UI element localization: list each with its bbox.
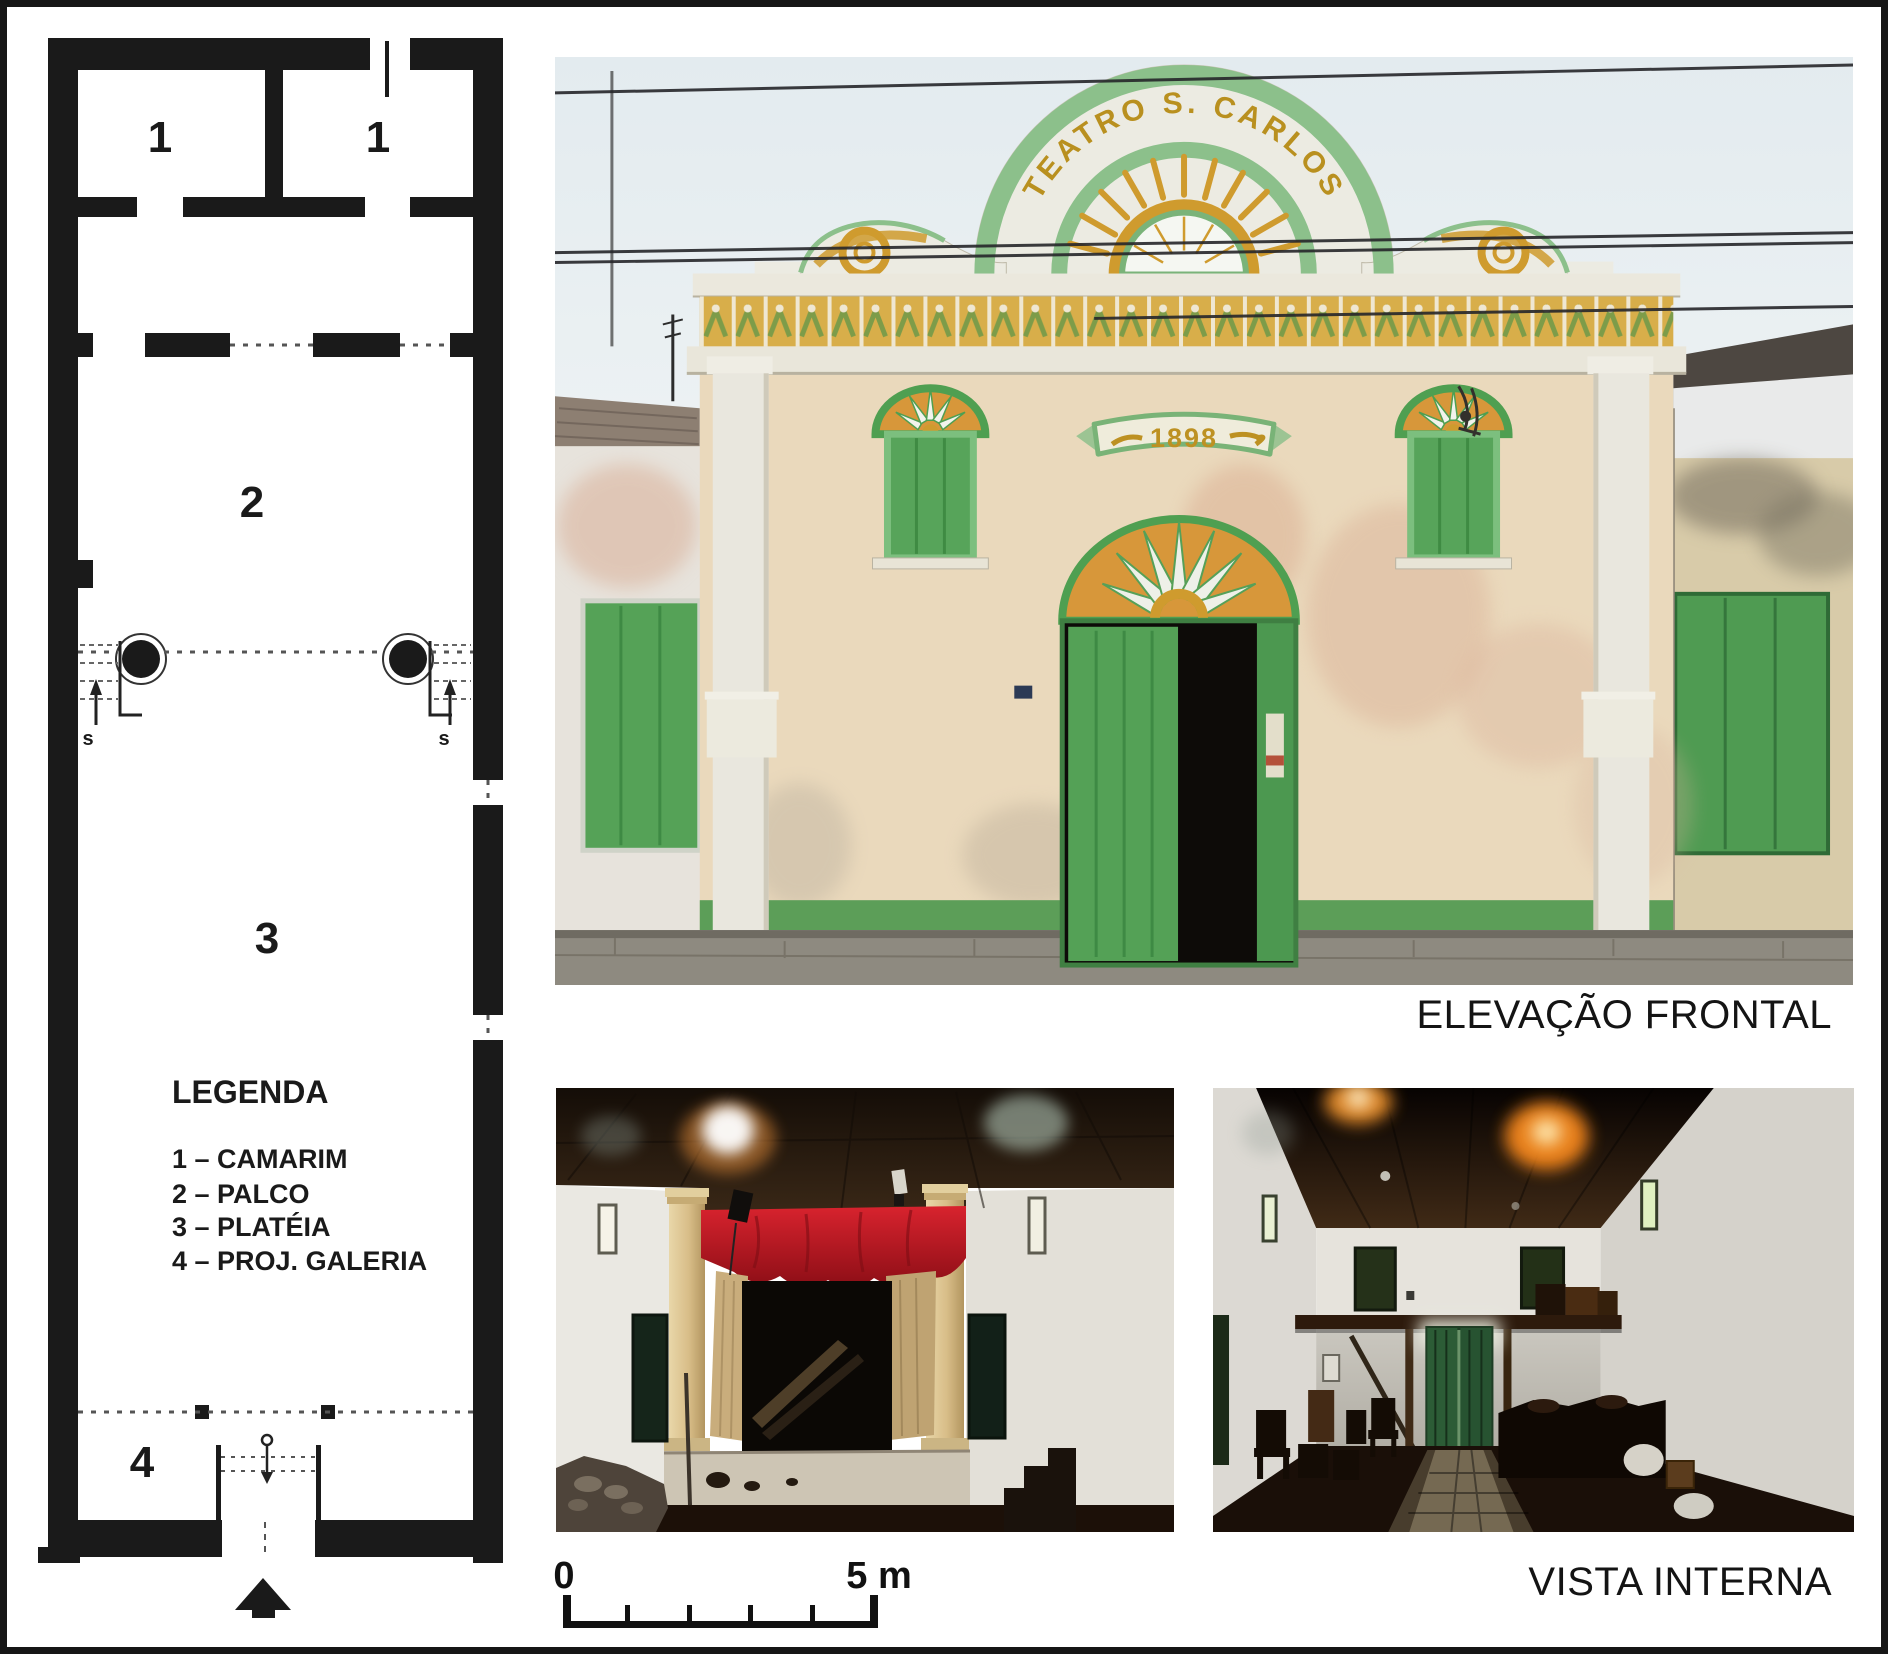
stored-box (1598, 1291, 1618, 1315)
left-neighbor-building (555, 314, 701, 930)
interior-photo-hall (1213, 1088, 1854, 1532)
white-bundle (1624, 1444, 1664, 1476)
left-wall-window (599, 1205, 616, 1253)
scale-zero-label: 0 (553, 1555, 574, 1597)
stored-box (1536, 1284, 1566, 1315)
plan-walls (38, 38, 503, 1563)
entablature (687, 274, 1686, 374)
facade-photo: TEATRO S. CARLOS (555, 57, 1853, 985)
legend-item: 4 – PROJ. GALERIA (172, 1246, 427, 1276)
year-banner: 1898 (1076, 414, 1292, 454)
right-wall-window (1642, 1181, 1657, 1229)
left-edge-door (1213, 1315, 1229, 1465)
right-wall-window (1029, 1198, 1045, 1253)
scale-bar: 0 5 m (548, 1552, 928, 1647)
room-label-palco: 2 (240, 478, 264, 527)
left-wall-door (633, 1315, 667, 1441)
scale-five-label: 5 m (846, 1555, 911, 1597)
stored-box (1566, 1287, 1600, 1315)
gallery-door-left (1355, 1248, 1395, 1310)
legend-title: LEGENDA (172, 1074, 328, 1110)
entrance-door-symbol (261, 1435, 273, 1484)
cardboard-box (1667, 1461, 1694, 1488)
stair-right-label: s (438, 728, 449, 750)
house-number-plaque (1014, 686, 1032, 699)
interior-caption: VISTA INTERNA (1280, 1560, 1832, 1605)
right-window (1396, 388, 1512, 569)
stair-right: s (430, 641, 471, 750)
interior-photo-stage (556, 1088, 1174, 1532)
facade-caption: ELEVAÇÃO FRONTAL (1280, 993, 1832, 1038)
room-label-plateia: 3 (255, 914, 279, 963)
cabinet (1308, 1390, 1334, 1442)
legend-item: 2 – PALCO (172, 1179, 310, 1209)
right-wall-door (969, 1315, 1005, 1438)
plan-legend: LEGENDA 1 – CAMARIM 2 – PALCO 3 – PLATÉI… (172, 1074, 427, 1276)
entrance-arrow-icon (235, 1578, 291, 1618)
stair-left-label: s (82, 728, 93, 750)
frieze-band (700, 296, 1674, 346)
room-label-camarim-left: 1 (148, 113, 172, 162)
year-banner-text: 1898 (1150, 423, 1218, 453)
legend-item: 1 – CAMARIM (172, 1144, 348, 1174)
wall-picture (1323, 1355, 1339, 1381)
side-curtain-right (886, 1271, 936, 1440)
legend-item: 3 – PLATÉIA (172, 1211, 331, 1242)
left-window (873, 388, 989, 569)
room-label-galeria: 4 (130, 1438, 155, 1487)
figure-page: s s 1 1 2 3 4 LEGENDA (0, 0, 1888, 1654)
left-wall-window (1263, 1196, 1276, 1241)
door-poster (1266, 714, 1284, 778)
floor-plan: s s 1 1 2 3 4 LEGENDA (30, 25, 510, 1625)
plan-columns (116, 634, 433, 684)
room-label-camarim-right: 1 (366, 113, 390, 162)
plan-dashed-lines (78, 345, 488, 1557)
